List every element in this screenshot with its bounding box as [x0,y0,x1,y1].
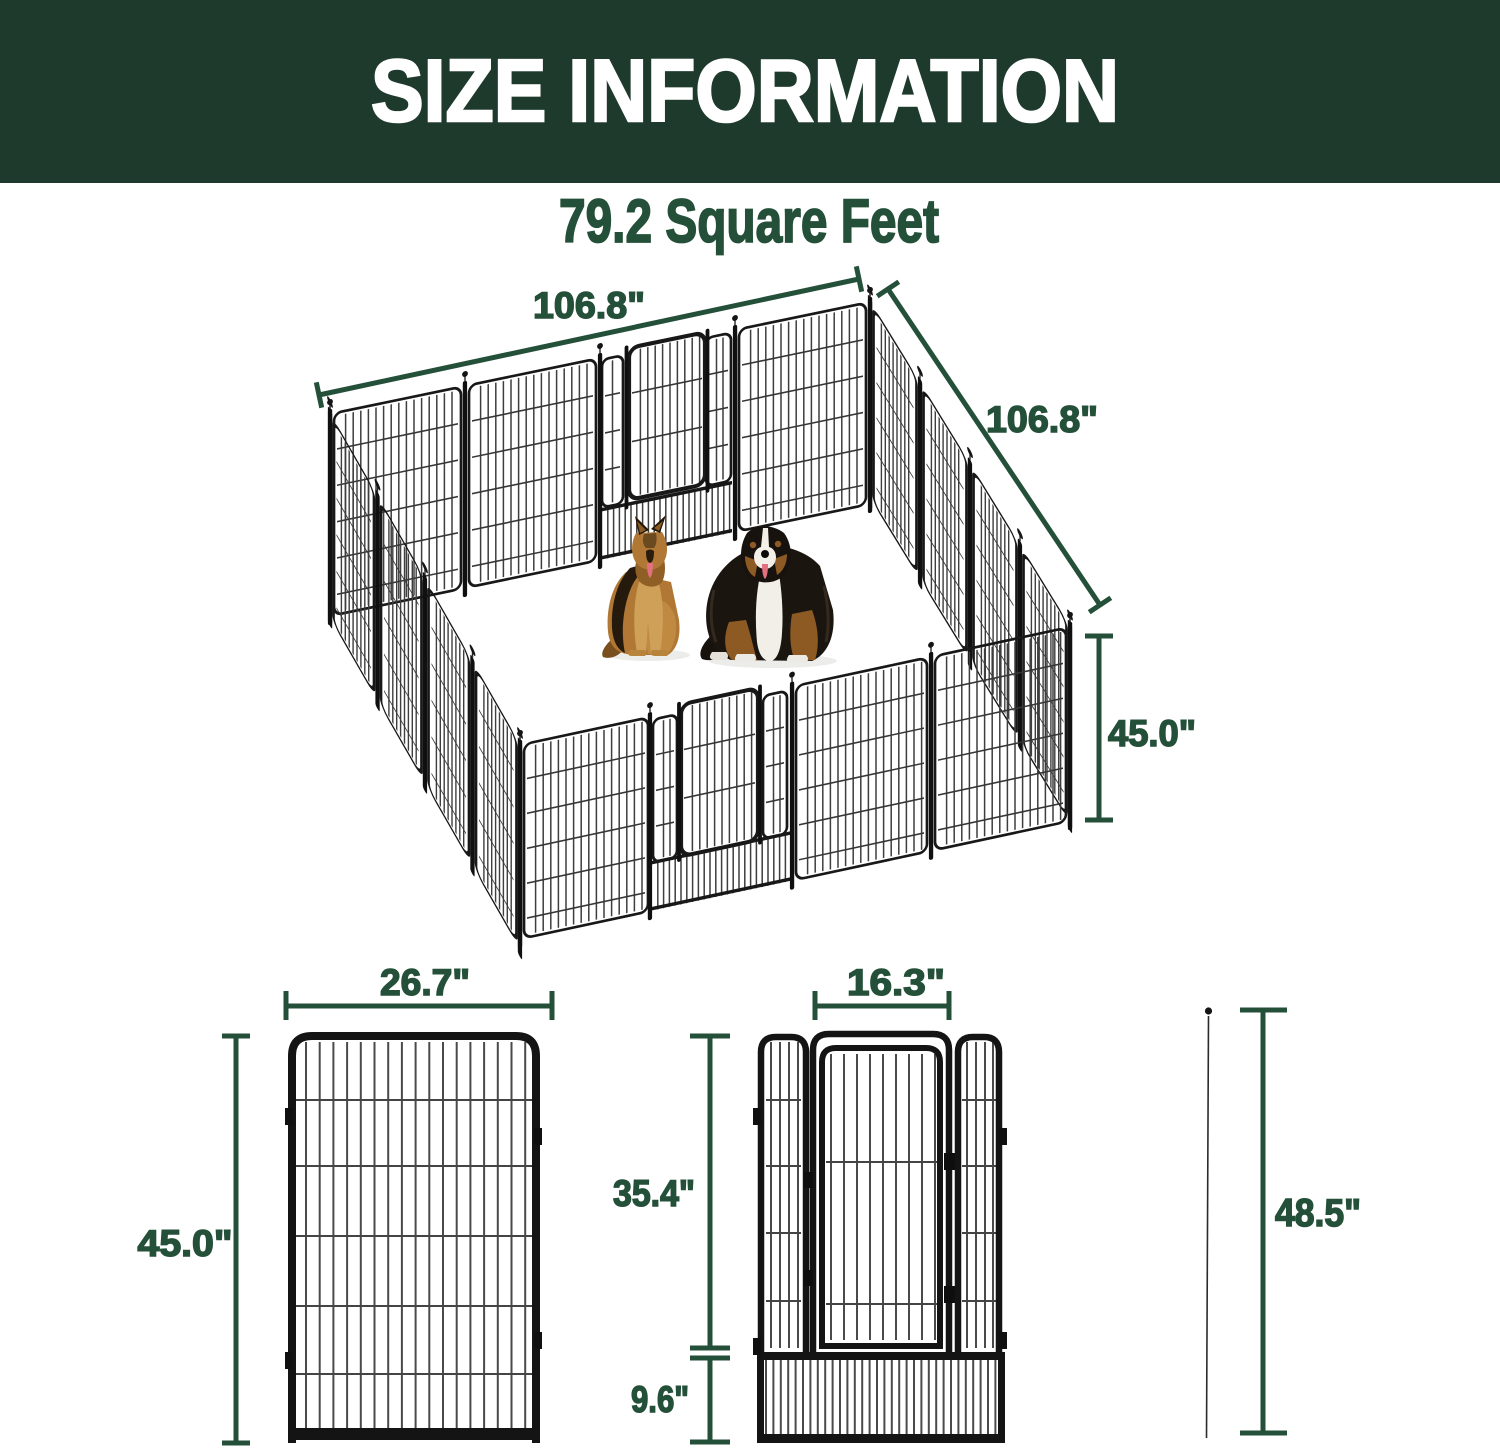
svg-text:SIZE INFORMATION: SIZE INFORMATION [371,41,1119,140]
svg-text:16.3": 16.3" [847,962,945,1003]
svg-text:9.6": 9.6" [631,1379,689,1420]
svg-text:79.2 Square Feet: 79.2 Square Feet [559,187,939,255]
svg-text:106.8": 106.8" [986,399,1098,440]
svg-text:45.0": 45.0" [1108,713,1196,754]
svg-text:26.7": 26.7" [380,962,470,1003]
svg-text:45.0": 45.0" [138,1223,233,1264]
svg-text:106.8": 106.8" [533,285,645,326]
svg-text:35.4": 35.4" [613,1173,695,1214]
svg-text:48.5": 48.5" [1275,1192,1361,1235]
